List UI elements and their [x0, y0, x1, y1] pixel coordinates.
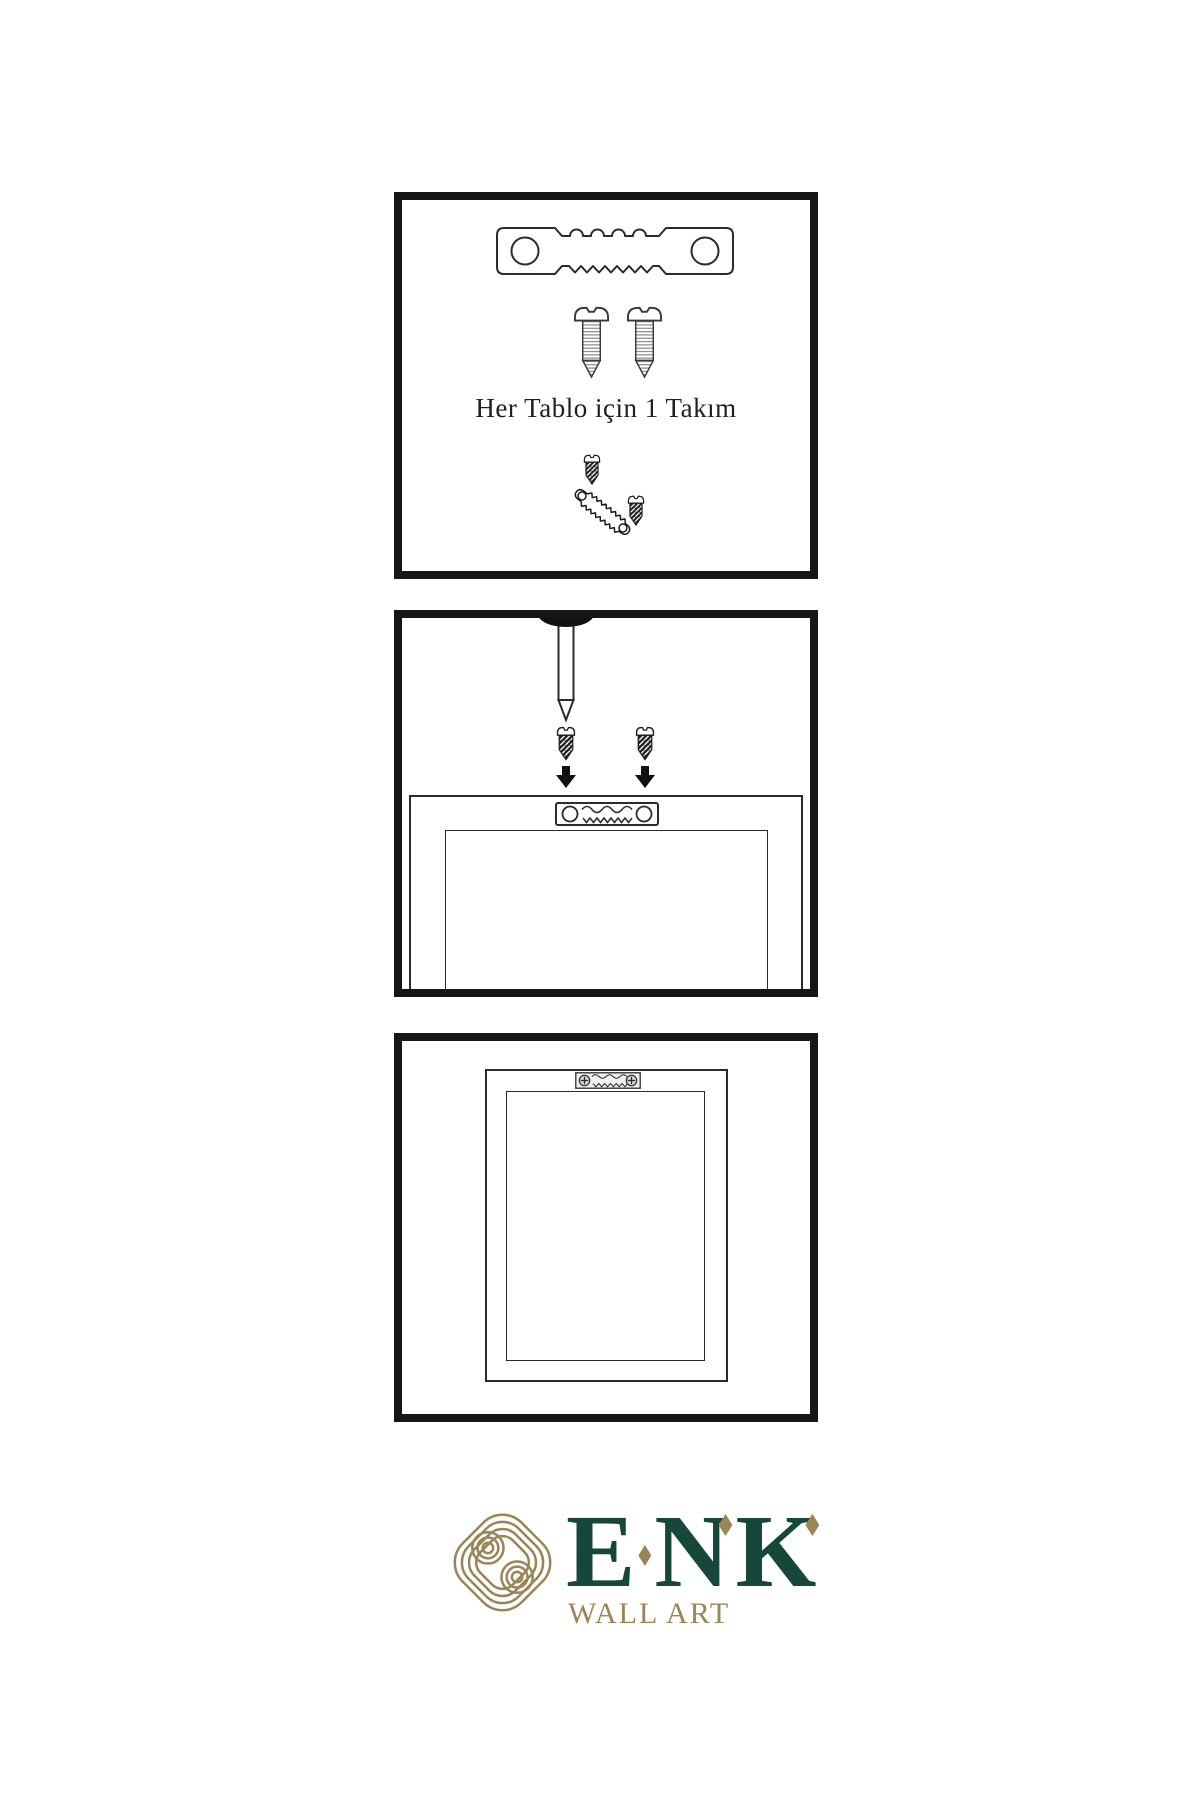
tagline-text: WALL ART	[568, 1597, 730, 1631]
screw-icon	[572, 304, 611, 385]
instruction-sheet: Her Tablo için 1 Takım	[0, 0, 1200, 1800]
arrow-down-icon	[556, 766, 576, 793]
diamond-accent-icon	[718, 1514, 732, 1536]
knot-logo-icon	[440, 1500, 565, 1630]
diamond-accent-icon	[638, 1545, 651, 1566]
brand-letter-k: K	[735, 1500, 816, 1604]
screw-into-hanger-icon	[569, 445, 684, 555]
small-screw-icon	[634, 725, 656, 769]
step1-panel: Her Tablo için 1 Takım	[394, 192, 818, 579]
frame-inner-edge	[506, 1091, 705, 1361]
step1-caption: Her Tablo için 1 Takım	[402, 393, 810, 424]
step2-panel	[394, 610, 818, 997]
step3-panel	[394, 1033, 818, 1422]
screw-icon	[625, 304, 664, 385]
arrow-down-icon	[635, 766, 655, 793]
installed-sawtooth-hanger-icon	[575, 1072, 641, 1094]
brand-tagline: WALL ART	[568, 1597, 730, 1631]
brand-letter-n: N	[654, 1500, 729, 1604]
brand-name: E N K	[566, 1500, 816, 1604]
diamond-accent-icon	[805, 1514, 819, 1536]
small-screw-icon	[626, 494, 646, 534]
sawtooth-hanger-icon	[495, 225, 735, 282]
frame-back-inner-edge	[445, 830, 768, 995]
small-screw-icon	[555, 725, 577, 769]
brand-letter-e: E	[566, 1500, 635, 1604]
sawtooth-hanger-on-frame-icon	[555, 802, 659, 831]
nail-icon	[536, 614, 596, 729]
